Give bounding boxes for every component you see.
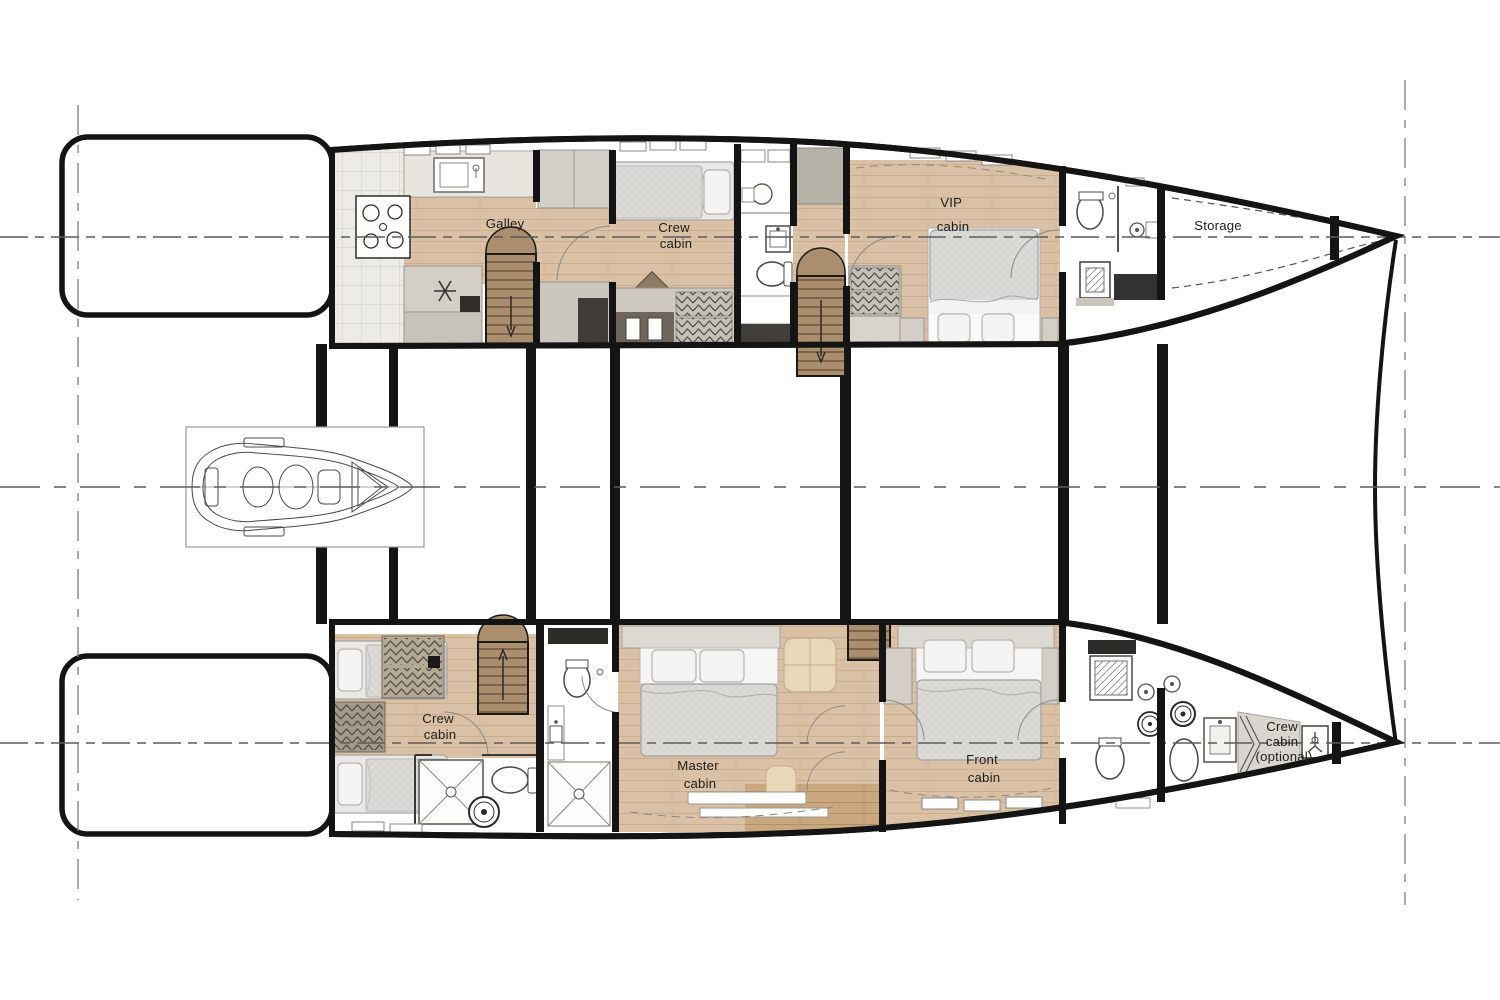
bath-dark-band [548, 628, 608, 644]
vanity-sink-icon [548, 706, 564, 760]
sink-icon [752, 184, 772, 204]
bed-step [688, 792, 806, 804]
aft-platform-starboard [62, 656, 332, 834]
double-bed [640, 648, 778, 756]
vanity-icon [1090, 656, 1132, 700]
bath-dark-band [1088, 640, 1136, 654]
berth-sink-unit [1204, 718, 1236, 762]
washing-machine-icon [1080, 262, 1110, 298]
floor-plan-canvas: Galley Crew cabin VIP cabin Storage Crew… [0, 0, 1500, 1000]
toilet-icon [1170, 739, 1198, 781]
shower-icon [548, 762, 610, 826]
sink-icon [1164, 676, 1180, 692]
washing-machine-icon [1171, 702, 1195, 726]
edge-window [700, 808, 828, 817]
wardrobe [849, 266, 901, 346]
galley-appliance [460, 296, 480, 312]
crossbeam [1058, 344, 1069, 624]
toilet-icon [1096, 738, 1124, 779]
closet-dark-unit [578, 298, 608, 344]
crew-stairs [478, 615, 528, 714]
bath-dark-unit [739, 324, 791, 344]
forward-beam-curve [1375, 240, 1396, 744]
wall-sink-icon [766, 226, 790, 252]
crossbeams [316, 344, 1168, 624]
crossbeam [610, 344, 620, 624]
galley-label: Galley [486, 216, 525, 231]
toilet-icon [1077, 192, 1103, 229]
aft-platform-port [62, 137, 332, 315]
toilet-icon [492, 767, 537, 793]
bath-mat [1076, 298, 1114, 306]
side-cabinet [884, 648, 912, 704]
galley-stairs [486, 227, 536, 346]
crossbeam [526, 344, 536, 624]
corridor-stairs [797, 248, 845, 376]
sink-icon [1138, 684, 1154, 700]
double-bed [916, 640, 1042, 760]
washing-machine-icon [469, 797, 499, 827]
counter-item [768, 150, 790, 162]
single-bed [614, 162, 734, 220]
wardrobe [614, 288, 737, 346]
bath-dark-unit [1114, 274, 1158, 300]
counter-item [741, 150, 765, 162]
galley-lower-cabinet-2 [404, 312, 482, 346]
crew-cabin-starboard-label: Crew cabin [422, 711, 457, 742]
crossbeam [840, 344, 851, 624]
wardrobe [382, 636, 444, 698]
toilet-icon [757, 262, 792, 286]
sofa [784, 638, 836, 692]
floor-plan-page: Galley Crew cabin VIP cabin Storage Crew… [0, 0, 1500, 1000]
companionway-wood-floor [536, 208, 612, 284]
headboard [622, 626, 780, 648]
mid-cabinets [333, 702, 385, 752]
vanity [742, 188, 754, 202]
corridor-cabinet [793, 148, 845, 204]
sink-icon [434, 158, 484, 192]
stove-icon [356, 196, 410, 258]
storage-label: Storage [1194, 218, 1242, 233]
crew-cabin-port-label: Crew cabin [658, 220, 693, 251]
bath-cabinet [739, 296, 791, 324]
edge-windows-crew-port [620, 141, 706, 151]
forward-crossbeam [1157, 344, 1168, 624]
